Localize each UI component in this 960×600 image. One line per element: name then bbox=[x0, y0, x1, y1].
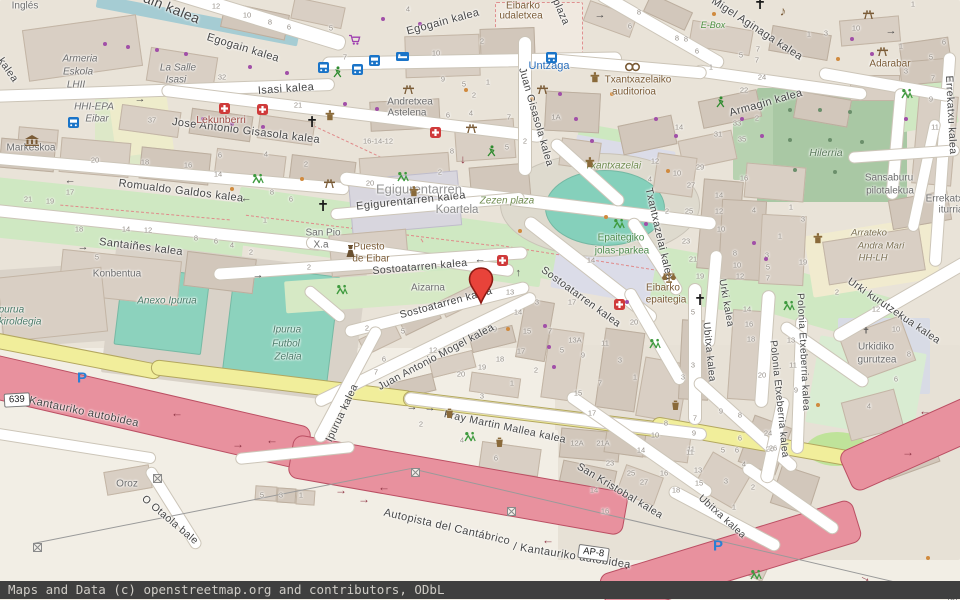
house-number: 10 bbox=[892, 325, 900, 334]
poi-dot-icon bbox=[464, 88, 468, 92]
place-label: Zezen plaza bbox=[480, 196, 534, 207]
house-number: 5 bbox=[505, 143, 509, 152]
place-label: Errekatxu bbox=[926, 194, 960, 205]
place-label: Andretxea bbox=[387, 97, 433, 108]
house-number: 29 bbox=[696, 163, 704, 172]
tree-icon bbox=[833, 170, 837, 174]
motorway-arrow-icon: → bbox=[378, 484, 390, 498]
cross-icon: ✝ bbox=[862, 326, 870, 337]
house-number: 21A bbox=[596, 439, 609, 448]
place-label: iturria bbox=[938, 205, 960, 216]
house-number: 6 bbox=[214, 237, 218, 246]
place-label: Andra Mari bbox=[858, 241, 904, 252]
motorway-arrow-icon: → bbox=[266, 437, 278, 451]
shop-dot-icon bbox=[343, 102, 347, 106]
shop-dot-icon bbox=[752, 241, 756, 245]
house-number: 23 bbox=[606, 459, 614, 468]
place-label: San Pio bbox=[305, 228, 340, 239]
house-number: 19 bbox=[478, 363, 486, 372]
shop-dot-icon bbox=[126, 45, 130, 49]
house-number: 2 bbox=[835, 288, 839, 297]
house-number: 15 bbox=[574, 389, 582, 398]
place-label: LHII bbox=[67, 80, 85, 91]
house-number: 1 bbox=[789, 203, 793, 212]
house-number: 2 bbox=[523, 137, 527, 146]
house-number: 23 bbox=[682, 237, 690, 246]
house-number: 15 bbox=[695, 479, 703, 488]
house-number: 24 bbox=[758, 73, 766, 82]
road-shield: 639 bbox=[4, 392, 31, 407]
house-number: 1 bbox=[486, 78, 490, 87]
place-label: HH-LH bbox=[858, 253, 887, 264]
place-label: Egigurentarren bbox=[376, 182, 462, 197]
house-number: 6 bbox=[218, 151, 222, 160]
church-cross-icon: ✝ bbox=[306, 113, 319, 131]
house-number: 3 bbox=[279, 491, 283, 500]
tree-icon bbox=[848, 110, 852, 114]
house-number: 2 bbox=[438, 168, 442, 177]
house-number: 1 bbox=[778, 232, 782, 241]
house-number: 3 bbox=[618, 356, 622, 365]
motorway-arrow-icon: → bbox=[902, 445, 914, 459]
attribution-bar: Maps and Data (c) openstreetmap.org and … bbox=[0, 581, 960, 599]
shop-dot-icon bbox=[740, 117, 744, 121]
house-number: 16 bbox=[740, 174, 748, 183]
house-number: 25 bbox=[685, 207, 693, 216]
motorway-arrow-icon: → bbox=[919, 408, 931, 422]
house-number: 14 bbox=[675, 123, 683, 132]
place-label: X.a bbox=[313, 240, 328, 251]
house-number: 2 bbox=[307, 263, 311, 272]
poi-dot-icon bbox=[506, 327, 510, 331]
house-number: 6 bbox=[738, 434, 742, 443]
house-number: 22 bbox=[740, 86, 748, 95]
poi-dot-icon bbox=[816, 403, 820, 407]
shop-dot-icon bbox=[644, 222, 648, 226]
house-number: 4 bbox=[230, 241, 234, 250]
house-number: 1 bbox=[732, 503, 736, 512]
house-number: 18 bbox=[747, 335, 755, 344]
house-number: 2 bbox=[665, 207, 669, 216]
house-number: 7 bbox=[548, 327, 552, 336]
house-number: 8 bbox=[907, 350, 911, 359]
house-number: 10 bbox=[717, 225, 725, 234]
house-number: 1A bbox=[551, 113, 560, 122]
house-number: 1 bbox=[510, 379, 514, 388]
house-number: 3 bbox=[824, 29, 828, 38]
shop-dot-icon bbox=[547, 345, 551, 349]
house-number: 20 bbox=[457, 370, 465, 379]
house-number: 16 bbox=[184, 161, 192, 170]
house-number: 18 bbox=[672, 486, 680, 495]
house-number: 8 bbox=[664, 419, 668, 428]
house-number: 14 bbox=[715, 191, 723, 200]
house-number: 4 bbox=[264, 150, 268, 159]
church-cross-icon: ✝ bbox=[317, 197, 330, 215]
house-number: 9 bbox=[441, 75, 445, 84]
tree-icon bbox=[860, 140, 864, 144]
shop-dot-icon bbox=[764, 257, 768, 261]
house-number: 8 bbox=[684, 35, 688, 44]
tree-icon bbox=[793, 168, 797, 172]
house-number: 14 bbox=[587, 256, 595, 265]
house-number: 7 bbox=[931, 74, 935, 83]
house-number: 14 bbox=[214, 170, 222, 179]
house-number: 2 bbox=[534, 366, 538, 375]
house-number: 5 bbox=[560, 346, 564, 355]
house-number: 3 bbox=[691, 361, 695, 370]
house-number: 10 bbox=[733, 261, 741, 270]
place-label: Futbol bbox=[272, 339, 300, 350]
house-number: 1 bbox=[263, 216, 267, 225]
house-number: 8 bbox=[194, 234, 198, 243]
house-number: 5 bbox=[721, 446, 725, 455]
place-label: HHI-EPA bbox=[74, 102, 114, 113]
shop-dot-icon bbox=[248, 65, 252, 69]
place-label: Ipurua bbox=[0, 305, 24, 316]
shop-dot-icon bbox=[552, 365, 556, 369]
tree-icon bbox=[828, 138, 832, 142]
house-number: 5 bbox=[329, 24, 333, 33]
place-label: Adarabar bbox=[869, 59, 910, 70]
shop-dot-icon bbox=[904, 117, 908, 121]
direction-arrow-icon: → bbox=[78, 241, 89, 253]
place-label: gurutzea bbox=[858, 355, 897, 366]
shop-dot-icon bbox=[103, 42, 107, 46]
place-label: Hilerria bbox=[809, 147, 842, 159]
place-label: Astelena bbox=[388, 108, 427, 119]
house-number: 7 bbox=[766, 274, 770, 283]
house-number: 2 bbox=[304, 160, 308, 169]
shop-dot-icon bbox=[558, 92, 562, 96]
place-label: udaletxea bbox=[499, 11, 542, 22]
house-number: 5 bbox=[766, 263, 770, 272]
place-label: kiroldegia bbox=[0, 317, 41, 328]
place-label: Puesto bbox=[353, 242, 384, 253]
place-label: Zelaia bbox=[274, 352, 301, 363]
house-number: 5 bbox=[260, 491, 264, 500]
house-number: 5 bbox=[95, 253, 99, 262]
poi-dot-icon bbox=[518, 229, 522, 233]
motorway-arrow-icon: → bbox=[232, 437, 244, 451]
house-number: 4 bbox=[469, 109, 473, 118]
house-number: 13 bbox=[694, 466, 702, 475]
building bbox=[744, 162, 807, 202]
house-number: 2 bbox=[751, 483, 755, 492]
house-number: 10 bbox=[852, 24, 860, 33]
direction-arrow-icon: → bbox=[241, 195, 252, 207]
house-number: 10 bbox=[651, 431, 659, 440]
tree-icon bbox=[818, 108, 822, 112]
house-number: 27 bbox=[640, 478, 648, 487]
house-number: 25 bbox=[627, 469, 635, 478]
house-number: 10 bbox=[243, 11, 251, 20]
place-label: Inglés bbox=[12, 1, 39, 12]
house-number: 11 bbox=[601, 339, 609, 348]
direction-arrow-icon: → bbox=[595, 9, 606, 21]
house-number: 14 bbox=[743, 305, 751, 314]
house-number: 3 bbox=[535, 298, 539, 307]
house-number: 19 bbox=[46, 197, 54, 206]
house-number: 4 bbox=[867, 402, 871, 411]
place-label: Txantxazelaiko bbox=[605, 75, 672, 86]
house-number: 1 bbox=[299, 491, 303, 500]
house-number: 7 bbox=[374, 368, 378, 377]
place-label: Lekunberri bbox=[196, 114, 246, 126]
house-number: 1 bbox=[911, 0, 915, 9]
house-number: 9 bbox=[719, 407, 723, 416]
house-number: 6 bbox=[446, 111, 450, 120]
place-label: Eibar bbox=[85, 114, 108, 125]
place-label: Urkidiko bbox=[858, 342, 894, 353]
place-label: Anexo Ipurua bbox=[137, 296, 197, 307]
house-number: 5 bbox=[929, 53, 933, 62]
house-number: 19 bbox=[696, 272, 704, 281]
shop-dot-icon bbox=[870, 52, 874, 56]
house-number: 16 bbox=[601, 507, 609, 516]
house-number: 12 bbox=[651, 157, 659, 166]
house-number: 7 bbox=[693, 414, 697, 423]
motorway-arrow-icon: → bbox=[458, 154, 472, 166]
house-number: 13 bbox=[506, 288, 514, 297]
place-label: pilotalekua bbox=[866, 186, 914, 197]
poi-dot-icon bbox=[604, 215, 608, 219]
place-label: epaitegia bbox=[646, 295, 687, 306]
house-number: 2 bbox=[419, 420, 423, 429]
place-label: Isasi bbox=[166, 75, 187, 86]
shop-dot-icon bbox=[850, 37, 854, 41]
poi-dot-icon bbox=[836, 57, 840, 61]
house-number: 2 bbox=[480, 37, 484, 46]
house-number: 16 bbox=[660, 469, 668, 478]
house-number: 31 bbox=[714, 130, 722, 139]
house-number: 3 bbox=[480, 392, 484, 401]
house-number: 8 bbox=[450, 147, 454, 156]
place-label: La Salle bbox=[160, 63, 196, 74]
house-number: 1 bbox=[709, 63, 713, 72]
house-number: 2 bbox=[365, 324, 369, 333]
motorway-arrow-icon: → bbox=[618, 559, 630, 573]
house-number: 1 bbox=[807, 30, 811, 39]
house-number: 7 bbox=[756, 45, 760, 54]
direction-arrow-icon: → bbox=[135, 93, 146, 105]
house-number: 11 bbox=[931, 123, 939, 132]
shop-dot-icon bbox=[381, 17, 385, 21]
house-number: 6 bbox=[735, 446, 739, 455]
house-number: 12 bbox=[715, 207, 723, 216]
direction-arrow-icon: → bbox=[425, 402, 436, 414]
house-number: 8 bbox=[738, 411, 742, 420]
poi-dot-icon bbox=[300, 177, 304, 181]
house-number: 9 bbox=[692, 429, 696, 438]
place-label: Ipurua bbox=[273, 325, 301, 336]
house-number: 16-14-12 bbox=[363, 137, 393, 146]
house-number: 9 bbox=[794, 386, 798, 395]
house-number: 8 bbox=[637, 8, 641, 17]
house-number: 12 bbox=[144, 226, 152, 235]
place-label: de Eibar bbox=[352, 254, 389, 265]
direction-arrow-icon: → bbox=[511, 268, 523, 279]
house-number: 17 bbox=[517, 347, 525, 356]
house-number: 14 bbox=[637, 446, 645, 455]
house-number: 2 bbox=[472, 91, 476, 100]
house-number: 6 bbox=[942, 38, 946, 47]
tree-icon bbox=[788, 108, 792, 112]
place-label: Eibarko bbox=[646, 283, 680, 294]
house-number: 1 bbox=[633, 373, 637, 382]
place-label: auditorioa bbox=[612, 87, 656, 98]
motorway-arrow-icon: → bbox=[171, 410, 183, 424]
house-number: 26 bbox=[769, 444, 777, 453]
house-number: 21 bbox=[24, 195, 32, 204]
house-number: 9 bbox=[581, 351, 585, 360]
direction-arrow-icon: → bbox=[407, 401, 418, 413]
shop-dot-icon bbox=[574, 117, 578, 121]
place-label: Oroz bbox=[116, 479, 138, 490]
tree-icon bbox=[788, 138, 792, 142]
shop-dot-icon bbox=[375, 107, 379, 111]
place-label: Koartela bbox=[436, 204, 479, 216]
house-number: 37 bbox=[148, 116, 156, 125]
place-label: E-Box bbox=[701, 20, 726, 30]
house-number: 14 bbox=[590, 486, 598, 495]
motorway-arrow-icon: → bbox=[335, 483, 347, 497]
shop-dot-icon bbox=[184, 52, 188, 56]
house-number: 21 bbox=[689, 255, 697, 264]
house-number: 24 bbox=[764, 429, 772, 438]
house-number: 9 bbox=[929, 95, 933, 104]
shop-dot-icon bbox=[155, 48, 159, 52]
house-number: 13A bbox=[568, 336, 581, 345]
music-note-icon: ♪ bbox=[780, 4, 787, 19]
house-number: 16 bbox=[745, 320, 753, 329]
house-number: 1 bbox=[899, 42, 903, 51]
shop-dot-icon bbox=[543, 324, 547, 328]
house-number: 7 bbox=[598, 379, 602, 388]
house-number: 4 bbox=[742, 460, 746, 469]
house-number: 20 bbox=[758, 371, 766, 380]
house-number: 6 bbox=[628, 22, 632, 31]
church-cross-icon: ✝ bbox=[754, 0, 767, 13]
house-number: 6 bbox=[695, 47, 699, 56]
direction-arrow-icon: → bbox=[253, 269, 264, 281]
house-number: 20 bbox=[366, 179, 374, 188]
house-number: 18 bbox=[496, 355, 504, 364]
place-label: Epaitegiko bbox=[598, 233, 645, 244]
map-canvas[interactable]: Maps and Data (c) openstreetmap.org and … bbox=[0, 0, 960, 600]
church-cross-icon: ✝ bbox=[694, 291, 707, 309]
house-number: 2 bbox=[249, 248, 253, 257]
house-number: 12A bbox=[570, 439, 583, 448]
house-number: 7 bbox=[507, 113, 511, 122]
place-label: Eskola bbox=[63, 67, 93, 78]
house-number: 6 bbox=[289, 195, 293, 204]
house-number: 32 bbox=[218, 73, 226, 82]
house-number: 18 bbox=[75, 225, 83, 234]
shop-dot-icon bbox=[590, 139, 594, 143]
house-number: 6 bbox=[894, 375, 898, 384]
house-number: 13 bbox=[787, 336, 795, 345]
house-number: 5 bbox=[739, 51, 743, 60]
shop-dot-icon bbox=[674, 134, 678, 138]
house-number: 12 bbox=[736, 272, 744, 281]
house-number: 3 bbox=[681, 373, 685, 382]
house-number: 17 bbox=[588, 409, 596, 418]
house-number: 7 bbox=[755, 56, 759, 65]
house-number: 12 bbox=[212, 2, 220, 11]
poi-dot-icon bbox=[712, 12, 716, 16]
place-label: Sansaburu bbox=[865, 173, 913, 184]
parking-icon[interactable]: P bbox=[713, 538, 723, 555]
house-number: 8 bbox=[733, 249, 737, 258]
place-label: Konbentua bbox=[93, 269, 141, 280]
place-label: jolas-parkea bbox=[595, 246, 649, 257]
house-number: 19 bbox=[799, 258, 807, 267]
house-number: 10 bbox=[432, 49, 440, 58]
house-number: 8 bbox=[270, 188, 274, 197]
house-number: 20 bbox=[630, 318, 638, 327]
house-number: 7 bbox=[343, 53, 347, 62]
attribution-text: Maps and Data (c) openstreetmap.org and … bbox=[8, 581, 445, 599]
shop-dot-icon bbox=[625, 300, 629, 304]
house-number: 5 bbox=[401, 327, 405, 336]
house-number: 4 bbox=[752, 206, 756, 215]
house-number: 14 bbox=[514, 308, 522, 317]
house-number: 21 bbox=[294, 101, 302, 110]
house-number: 6 bbox=[287, 23, 291, 32]
parking-icon[interactable]: P bbox=[77, 370, 87, 387]
house-number: 6 bbox=[494, 454, 498, 463]
direction-arrow-icon: → bbox=[65, 177, 76, 189]
house-number: 4 bbox=[406, 5, 410, 14]
house-number: 18 bbox=[141, 158, 149, 167]
direction-arrow-icon: → bbox=[886, 25, 897, 37]
house-number: 10 bbox=[673, 169, 681, 178]
house-number: 15 bbox=[523, 327, 531, 336]
shop-dot-icon bbox=[654, 117, 658, 121]
house-number: 3 bbox=[724, 477, 728, 486]
house-number: 6 bbox=[382, 355, 386, 364]
house-number: 14 bbox=[122, 225, 130, 234]
poi-dot-icon bbox=[926, 556, 930, 560]
house-number: 35 bbox=[738, 135, 746, 144]
house-number: 8 bbox=[268, 18, 272, 27]
motorway-arrow-icon: → bbox=[542, 537, 554, 551]
house-number: 20 bbox=[91, 156, 99, 165]
house-number: 3 bbox=[801, 215, 805, 224]
shop-dot-icon bbox=[285, 71, 289, 75]
shop-dot-icon bbox=[760, 134, 764, 138]
house-number: 11 bbox=[789, 361, 797, 370]
place-label: Armeria bbox=[62, 54, 97, 65]
poi-dot-icon bbox=[666, 169, 670, 173]
place-label: Aizarna bbox=[411, 283, 445, 294]
house-number: 11 bbox=[686, 448, 694, 457]
house-number: 2 bbox=[755, 114, 759, 123]
house-number: 4 bbox=[648, 175, 652, 184]
place-label: Arrateko bbox=[851, 228, 887, 239]
house-number: 27 bbox=[687, 181, 695, 190]
house-number: 8 bbox=[675, 34, 679, 43]
motorway-arrow-icon: → bbox=[358, 492, 370, 506]
